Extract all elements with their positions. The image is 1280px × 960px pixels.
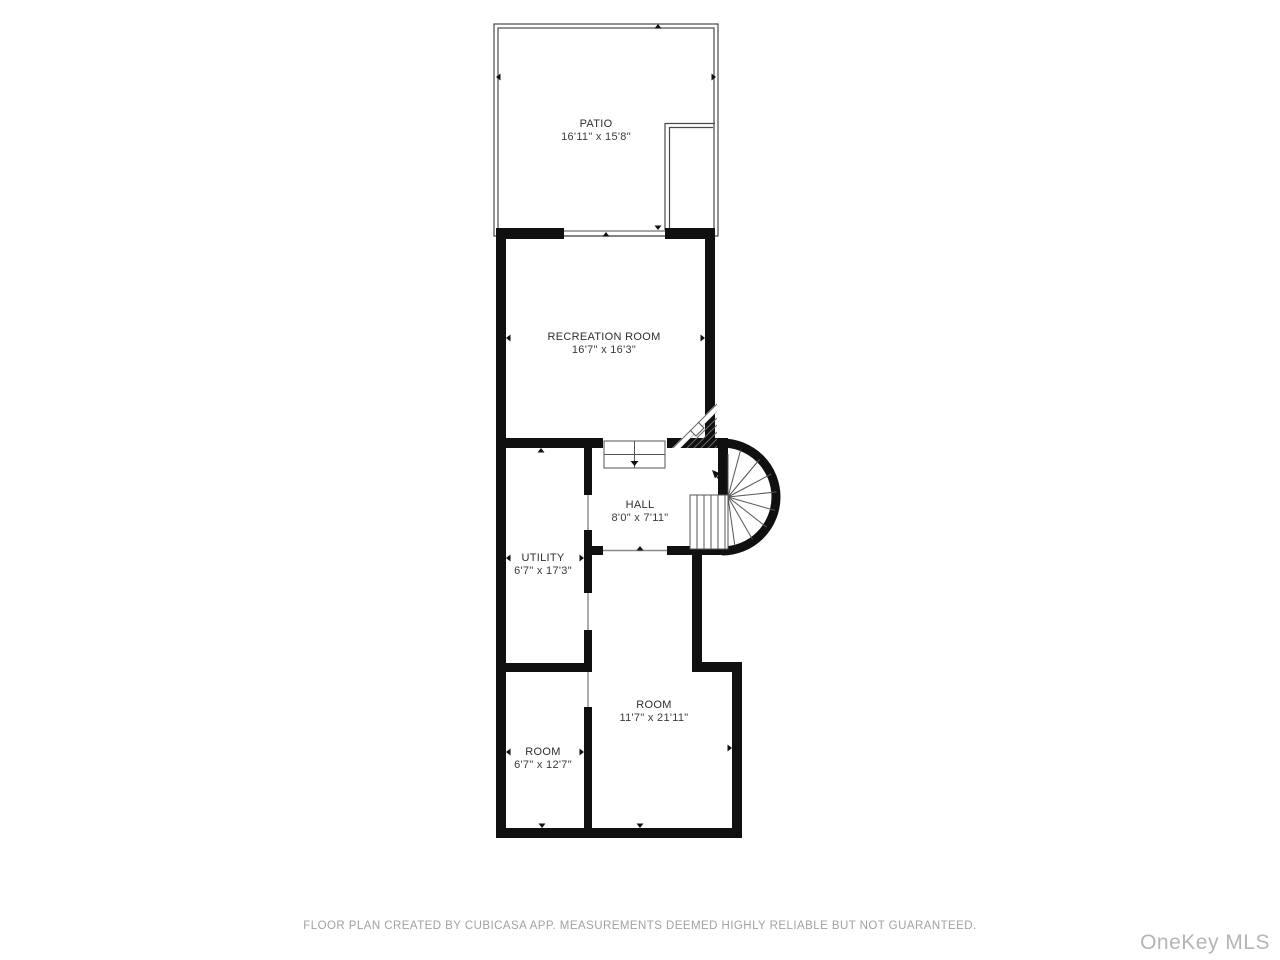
wall-utility-right-2 bbox=[584, 530, 592, 593]
room-name: RECREATION ROOM bbox=[547, 331, 660, 344]
wall-rec-top-1 bbox=[496, 228, 564, 239]
room-dimensions: 16'7" x 16'3" bbox=[547, 344, 660, 357]
room-name: PATIO bbox=[561, 118, 631, 131]
room-name: ROOM bbox=[514, 746, 572, 759]
room-name: HALL bbox=[612, 499, 669, 512]
wall-left bbox=[496, 228, 506, 838]
wall-utility-bottom bbox=[496, 663, 592, 672]
room-label-room-large: ROOM 11'7" x 21'11" bbox=[619, 699, 688, 725]
spiral-stair-steps bbox=[690, 495, 728, 549]
wall-bigroom-right-2 bbox=[732, 662, 742, 838]
room-dimensions: 6'7" x 12'7" bbox=[514, 759, 572, 772]
entry-steps bbox=[604, 441, 665, 468]
room-label-recreation-room: RECREATION ROOM 16'7" x 16'3" bbox=[547, 331, 660, 357]
disclaimer-text: FLOOR PLAN CREATED BY CUBICASA APP. MEAS… bbox=[0, 920, 1280, 932]
room-label-room-small: ROOM 6'7" x 12'7" bbox=[514, 746, 572, 772]
floor-plan-page: PATIO 16'11" x 15'8" RECREATION ROOM 16'… bbox=[0, 0, 1280, 960]
wall-bigroom-right-1 bbox=[692, 546, 702, 672]
watermark-onekey-mls: OneKey MLS bbox=[1140, 931, 1270, 955]
room-label-patio: PATIO 16'11" x 15'8" bbox=[561, 118, 631, 144]
room-dimensions: 6'7" x 17'3" bbox=[514, 565, 572, 578]
wall-bottom bbox=[496, 828, 742, 838]
opening-lines bbox=[564, 231, 667, 707]
wall-rooms-divider bbox=[584, 707, 592, 838]
floor-plan-drawing bbox=[0, 0, 1280, 960]
room-name: ROOM bbox=[619, 699, 688, 712]
wall-utility-right-1 bbox=[584, 438, 592, 495]
room-dimensions: 11'7" x 21'11" bbox=[619, 712, 688, 725]
patio-stoop-outline bbox=[665, 124, 715, 231]
room-dimensions: 16'11" x 15'8" bbox=[561, 131, 631, 144]
room-name: UTILITY bbox=[514, 552, 572, 565]
room-label-utility: UTILITY 6'7" x 17'3" bbox=[514, 552, 572, 578]
room-label-hall: HALL 8'0" x 7'11" bbox=[612, 499, 669, 525]
wall-hall-bottom-1 bbox=[584, 546, 603, 555]
room-dimensions: 8'0" x 7'11" bbox=[612, 512, 669, 525]
